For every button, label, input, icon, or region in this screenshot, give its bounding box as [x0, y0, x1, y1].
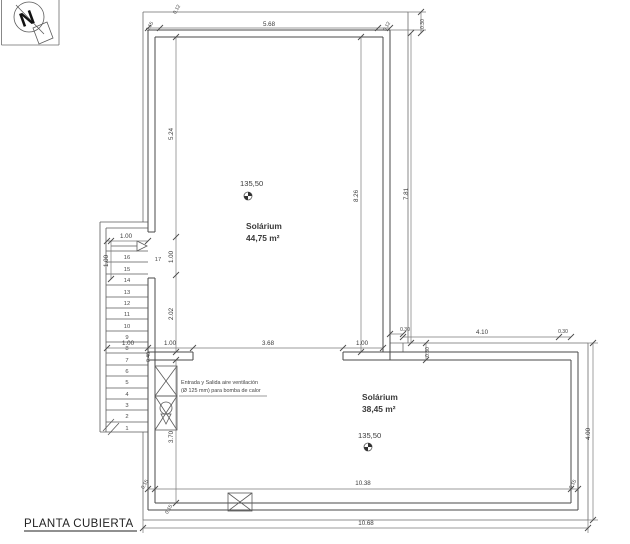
- dim-label: 0.30: [400, 327, 410, 333]
- dim-label: 3.68: [262, 340, 275, 347]
- north-compass: N: [2, 0, 60, 45]
- title-block: PLANTA CUBIERTA: [24, 518, 137, 531]
- dim-label: 3.70: [168, 430, 175, 443]
- level-marker-icon: [248, 192, 252, 196]
- dim-label: 4.10: [476, 329, 489, 336]
- note-line-1: Entrada y Salida aire ventilación: [181, 380, 258, 386]
- step-number: 16: [124, 255, 130, 261]
- skylight-box: [228, 493, 252, 511]
- step-number: 7: [125, 358, 128, 364]
- dim-label: 1.00: [356, 340, 369, 347]
- dim-label: 0.40: [146, 352, 152, 362]
- dim-label: 7.81: [403, 187, 410, 200]
- dim-label: 1.00: [120, 233, 133, 240]
- dim-label: 0.30: [425, 347, 431, 357]
- north-arrow-icon: N: [17, 6, 38, 32]
- step-number: 5: [125, 380, 128, 386]
- level-marker-icon: [244, 196, 248, 200]
- level-marker-icon: [364, 447, 368, 451]
- dim-label: 2.02: [168, 307, 175, 320]
- dimension-ticks: [104, 9, 596, 531]
- stair-break-mark: [103, 419, 114, 431]
- dim-label: 10.38: [355, 480, 371, 487]
- step-number: 12: [124, 301, 130, 307]
- level-value-upper: 135,50: [240, 179, 263, 188]
- dim-label: 0.12: [172, 4, 182, 16]
- dim-label: 0.30: [558, 329, 568, 335]
- room-name-upper: Solárium: [246, 221, 282, 231]
- room-name-lower: Solárium: [362, 392, 398, 402]
- step-number: 6: [125, 369, 128, 375]
- level-value-lower: 135,50: [358, 431, 381, 440]
- note-line-2: (Ø 125 mm) para bomba de calor: [181, 388, 261, 394]
- level-marker-icon: [368, 443, 372, 447]
- dim-label: 10.68: [358, 520, 374, 527]
- step-number: 15: [124, 267, 130, 273]
- step-number: 2: [125, 414, 128, 420]
- fan-symbol-icon: [160, 402, 172, 414]
- dim-label: 5.24: [168, 127, 175, 140]
- floor-plan-drawing: N: [0, 0, 630, 544]
- step-number-top: 17: [155, 257, 161, 263]
- dimension-labels: 0.12 0.15 5.68 0.12 0.30 5.24 1.00 2.02 …: [103, 4, 592, 527]
- step-number: 3: [125, 403, 128, 409]
- level-marker-lower: [364, 443, 372, 451]
- ventilation-note: Entrada y Salida aire ventilación (Ø 125…: [179, 380, 267, 396]
- dim-label: 1.00: [103, 254, 110, 267]
- dim-label: 0.15: [164, 504, 174, 516]
- dim-label: 0.12: [382, 21, 392, 33]
- dim-label: 4.00: [585, 427, 592, 440]
- step-number: 1: [125, 426, 128, 432]
- room-area-upper: 44,75 m²: [246, 233, 280, 243]
- level-marker-upper: [244, 192, 252, 200]
- step-number: 11: [124, 312, 130, 318]
- room-labels: 135,50 Solárium 44,75 m² Solárium 38,45 …: [240, 179, 398, 440]
- stair-arrow-head-icon: [137, 241, 147, 251]
- dim-label: 1.00: [164, 340, 177, 347]
- dim-label: 0.15: [568, 479, 578, 491]
- step-number: 13: [124, 290, 130, 296]
- step-number: 10: [124, 324, 130, 330]
- dim-label: 1.00: [122, 340, 135, 347]
- floor-plan-page: N: [0, 0, 630, 544]
- dim-label: 8.26: [353, 189, 360, 202]
- dim-label: 0.30: [420, 19, 426, 29]
- step-number: 14: [124, 278, 131, 284]
- ventilation-shaft: [155, 366, 177, 430]
- page-title: PLANTA CUBIERTA: [24, 518, 134, 530]
- dim-label: 1.00: [168, 250, 175, 263]
- dim-label: 5.68: [263, 21, 276, 28]
- stair-break-mark: [108, 423, 119, 435]
- step-number: 4: [125, 392, 129, 398]
- dimension-lines: [107, 12, 598, 533]
- room-area-lower: 38,45 m²: [362, 404, 396, 414]
